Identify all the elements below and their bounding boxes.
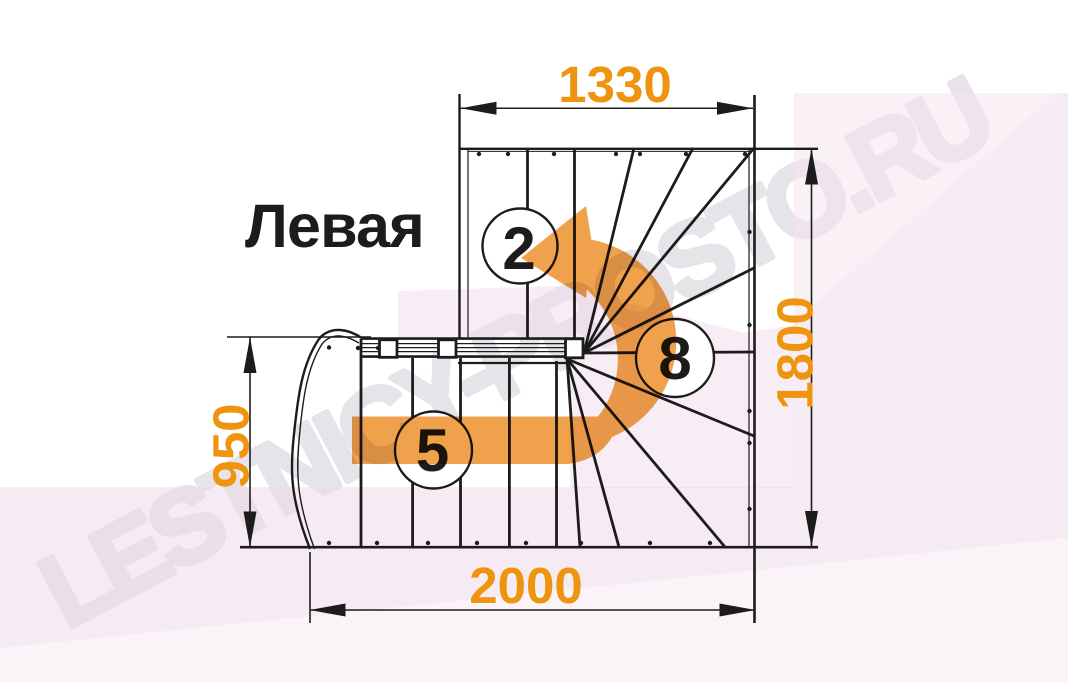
svg-text:2: 2 [502, 215, 535, 282]
svg-text:2000: 2000 [469, 557, 582, 614]
svg-text:1330: 1330 [558, 56, 671, 113]
svg-text:Левая: Левая [245, 192, 424, 260]
svg-text:1800: 1800 [766, 296, 823, 409]
svg-text:950: 950 [202, 403, 259, 488]
